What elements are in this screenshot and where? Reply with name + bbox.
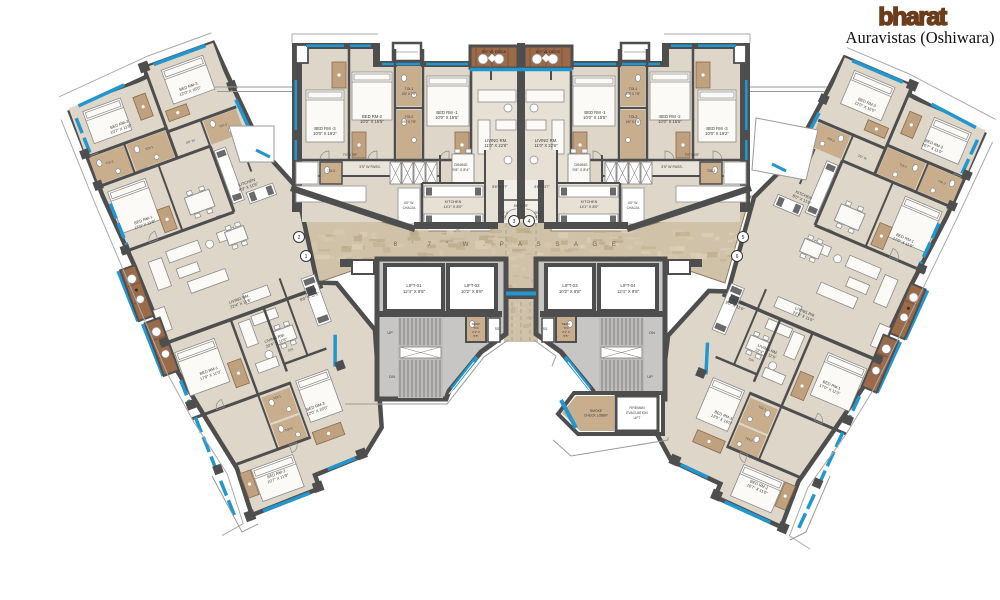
svg-text:bharat: bharat bbox=[878, 3, 948, 31]
svg-text:LIFT-02: LIFT-02 bbox=[464, 283, 480, 288]
svg-text:10′0″ X 15′5″: 10′0″ X 15′5″ bbox=[583, 115, 607, 120]
svg-text:4′0″ W.: 4′0″ W. bbox=[404, 201, 415, 205]
svg-text:FIREMAN: FIREMAN bbox=[629, 406, 645, 410]
svg-text:11′0″ X 22′6″: 11′0″ X 22′6″ bbox=[484, 143, 508, 148]
svg-text:SS: SS bbox=[495, 327, 500, 331]
svg-text:CHECK LOBBY: CHECK LOBBY bbox=[584, 414, 609, 418]
svg-text:14′1″ X 8′0″: 14′1″ X 8′0″ bbox=[579, 205, 599, 209]
svg-text:10′0″ X 19′2″: 10′0″ X 19′2″ bbox=[705, 131, 729, 136]
svg-text:KITCHEN: KITCHEN bbox=[445, 200, 462, 204]
svg-text:8′6″ X 3′7″: 8′6″ X 3′7″ bbox=[492, 185, 508, 189]
svg-text:10′0″ X 15′5″: 10′0″ X 15′5″ bbox=[658, 119, 682, 124]
svg-text:SMOKE: SMOKE bbox=[590, 409, 603, 413]
svg-text:2: 2 bbox=[298, 235, 301, 241]
svg-text:EVACUATION: EVACUATION bbox=[626, 411, 648, 415]
svg-text:14′1″ X 8′0″: 14′1″ X 8′0″ bbox=[443, 205, 463, 209]
svg-text:LIFT: LIFT bbox=[634, 416, 641, 420]
svg-text:UP: UP bbox=[387, 330, 393, 335]
svg-text:DINING: DINING bbox=[454, 163, 467, 167]
svg-text:LIFT-03: LIFT-03 bbox=[562, 283, 578, 288]
svg-text:4′6″ X 7′6″: 4′6″ X 7′6″ bbox=[402, 120, 417, 124]
svg-text:4′0″ W.: 4′0″ W. bbox=[628, 201, 639, 205]
svg-text:10′2″ X 8′8″: 10′2″ X 8′8″ bbox=[559, 289, 582, 294]
svg-text:8 ′ 7 ″ W . P A S S A G: 8 ′ 7 ″ W . P A S S A G E bbox=[393, 241, 622, 248]
svg-text:CHAJJA: CHAJJA bbox=[627, 206, 641, 210]
svg-text:6: 6 bbox=[736, 254, 739, 260]
svg-text:TOI-2: TOI-2 bbox=[405, 115, 414, 119]
svg-text:SS: SS bbox=[543, 327, 548, 331]
svg-text:LIFT-01: LIFT-01 bbox=[406, 283, 422, 288]
svg-text:10′0″ X 19′2″: 10′0″ X 19′2″ bbox=[313, 131, 337, 136]
svg-text:DN: DN bbox=[389, 374, 395, 379]
svg-text:4′6″ X 7′6″: 4′6″ X 7′6″ bbox=[626, 120, 641, 124]
svg-text:3: 3 bbox=[513, 219, 516, 225]
svg-text:4′5″ X 7′6″: 4′5″ X 7′6″ bbox=[626, 92, 641, 96]
svg-text:9′8″ X 8′4″: 9′8″ X 8′4″ bbox=[452, 168, 470, 172]
svg-text:4′5″ X 7′6″: 4′5″ X 7′6″ bbox=[402, 92, 417, 96]
svg-text:9′8″ X 8′4″: 9′8″ X 8′4″ bbox=[572, 168, 590, 172]
svg-text:10′0″ X 15′5″: 10′0″ X 15′5″ bbox=[435, 115, 459, 120]
svg-text:5′6″ X 5′9″: 5′6″ X 5′9″ bbox=[514, 204, 529, 208]
svg-text:5'5″: 5'5″ bbox=[564, 334, 569, 338]
svg-text:7′0″ X 3′5″: 7′0″ X 3′5″ bbox=[343, 153, 358, 157]
svg-text:5′0″ W. DECK: 5′0″ W. DECK bbox=[482, 49, 507, 54]
svg-text:12′4″ X 8′8″: 12′4″ X 8′8″ bbox=[617, 289, 640, 294]
svg-text:8′6″ X 3′7″: 8′6″ X 3′7″ bbox=[534, 185, 550, 189]
svg-text:LIFT-04: LIFT-04 bbox=[620, 283, 636, 288]
svg-text:DN: DN bbox=[649, 330, 655, 335]
svg-text:11′0″ X 22′6″: 11′0″ X 22′6″ bbox=[534, 143, 558, 148]
svg-text:3'5″ W PASS.: 3'5″ W PASS. bbox=[359, 165, 381, 169]
svg-text:KITCHEN: KITCHEN bbox=[581, 200, 598, 204]
svg-text:UP: UP bbox=[647, 374, 653, 379]
svg-text:Auravistas (Oshiwara): Auravistas (Oshiwara) bbox=[846, 28, 995, 47]
svg-text:CHAJJA: CHAJJA bbox=[403, 206, 417, 210]
svg-text:1: 1 bbox=[305, 254, 308, 260]
svg-text:TOI-2: TOI-2 bbox=[629, 115, 638, 119]
svg-text:6′0″: 6′0″ bbox=[535, 215, 541, 219]
svg-text:DINING: DINING bbox=[574, 163, 587, 167]
svg-text:5: 5 bbox=[742, 235, 745, 241]
svg-text:4: 4 bbox=[528, 219, 531, 225]
svg-text:TOI-1: TOI-1 bbox=[629, 87, 638, 91]
svg-text:6′0″: 6′0″ bbox=[501, 215, 507, 219]
svg-text:TOI-1: TOI-1 bbox=[405, 87, 414, 91]
svg-text:5'5″: 5'5″ bbox=[474, 334, 479, 338]
svg-text:10′2″ X 8′8″: 10′2″ X 8′8″ bbox=[461, 289, 484, 294]
svg-text:TOI-3: TOI-3 bbox=[327, 169, 335, 173]
svg-text:7′0″ X 3′5″: 7′0″ X 3′5″ bbox=[685, 153, 700, 157]
svg-text:3'5″ W PASS.: 3'5″ W PASS. bbox=[661, 165, 683, 169]
svg-text:5′0″ W. DECK: 5′0″ W. DECK bbox=[536, 49, 561, 54]
svg-text:10′0″ X 15′5″: 10′0″ X 15′5″ bbox=[360, 119, 384, 124]
svg-text:TOI-3: TOI-3 bbox=[707, 169, 715, 173]
svg-text:12′4″ X 8′8″: 12′4″ X 8′8″ bbox=[403, 289, 426, 294]
